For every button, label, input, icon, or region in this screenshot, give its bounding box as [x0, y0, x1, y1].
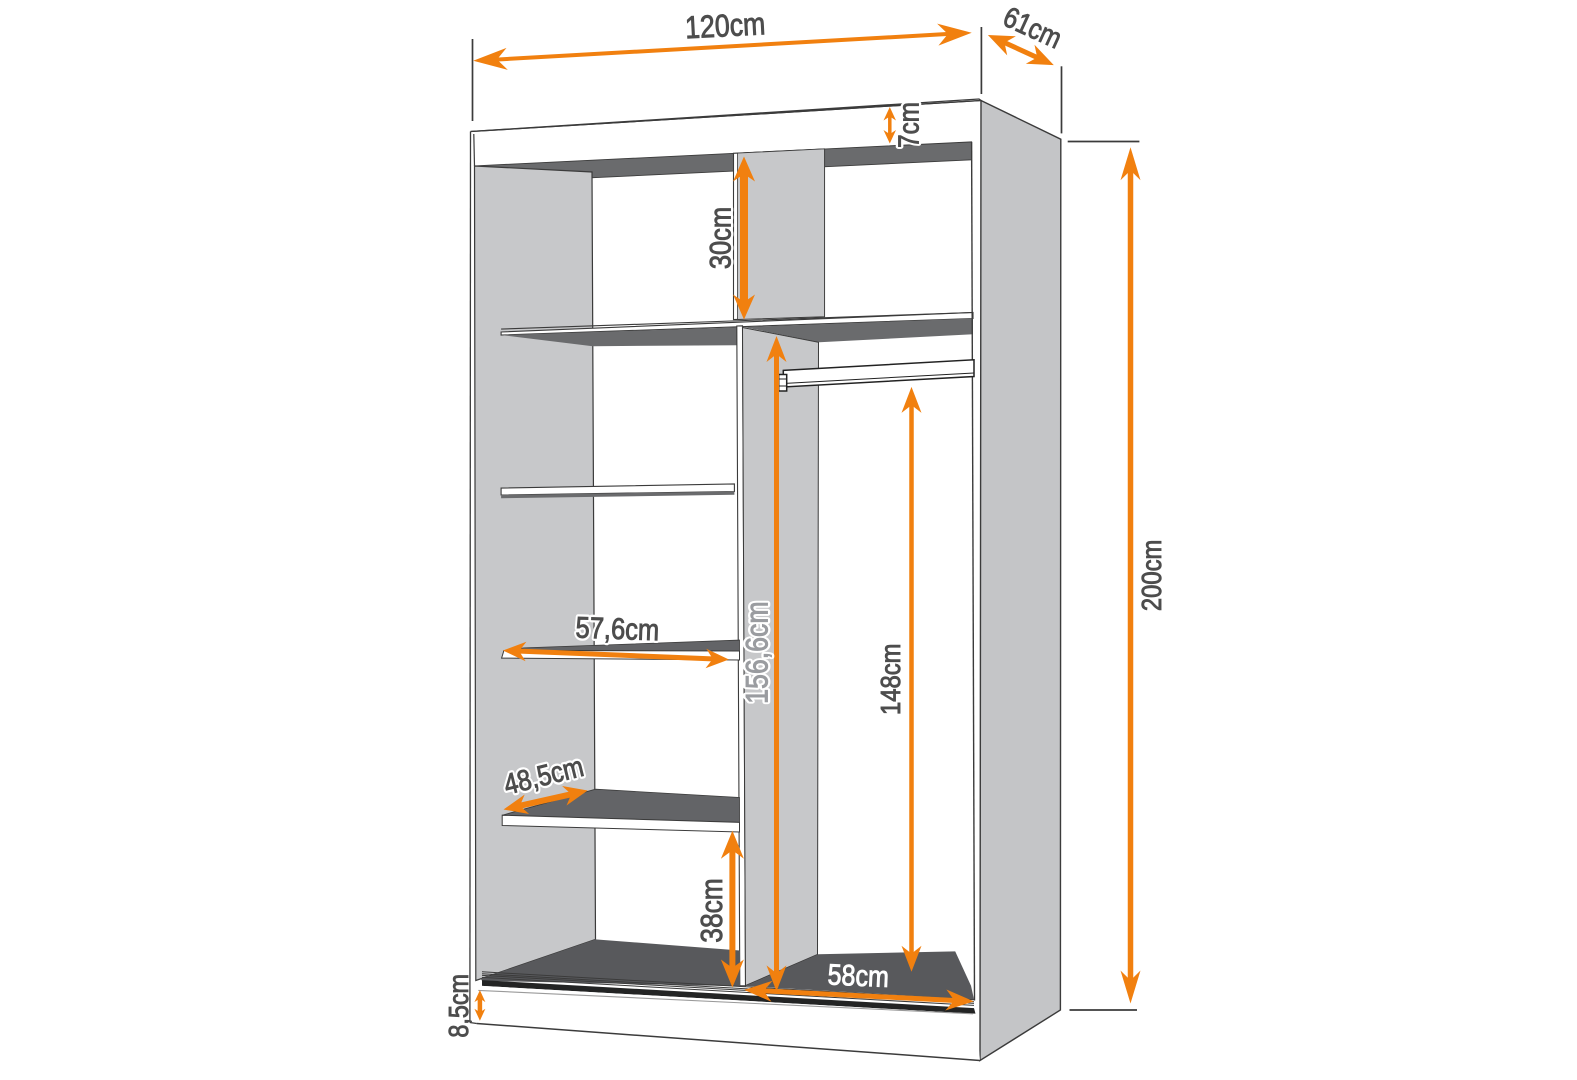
svg-text:148cm: 148cm	[874, 644, 906, 715]
svg-text:58cm: 58cm	[827, 957, 890, 993]
svg-text:57,6cm: 57,6cm	[575, 611, 660, 647]
svg-text:7cm: 7cm	[893, 102, 925, 148]
svg-text:38cm: 38cm	[695, 878, 729, 942]
svg-text:8,5cm: 8,5cm	[444, 974, 474, 1038]
svg-text:30cm: 30cm	[704, 207, 737, 269]
svg-text:200cm: 200cm	[1135, 540, 1167, 611]
svg-text:156,6cm: 156,6cm	[740, 601, 774, 704]
svg-text:120cm: 120cm	[684, 7, 766, 46]
